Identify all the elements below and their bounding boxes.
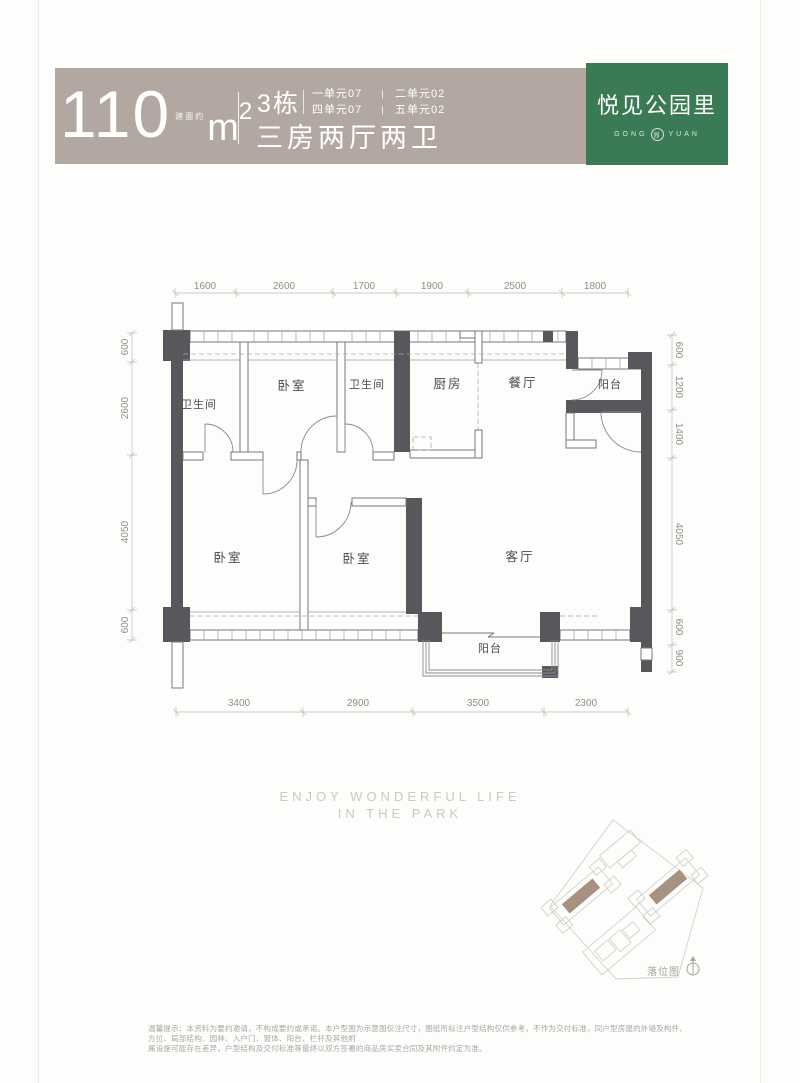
site-plan-label: 落位图 bbox=[647, 965, 680, 978]
dim-top-6: 1800 bbox=[584, 281, 607, 292]
dim-top-5: 2500 bbox=[504, 281, 527, 292]
dim-top-4: 1900 bbox=[421, 281, 444, 292]
dim-left-4: 600 bbox=[120, 616, 131, 633]
disclaimer-line2: 属设施可能存在差异，户型结构及交付标准等最终以双方签署的商品房买卖合同及其附件约… bbox=[148, 1044, 688, 1054]
room-label-bedroom-left: 卧室 bbox=[213, 550, 242, 565]
dim-left-3: 4050 bbox=[120, 520, 131, 543]
dim-left-1: 600 bbox=[120, 338, 131, 355]
tagline-line1: ENJOY WONDERFUL LIFE bbox=[0, 788, 800, 805]
room-label-bathroom-1: 卫生间 bbox=[181, 397, 217, 411]
room-label-bedroom-mid: 卧室 bbox=[342, 551, 371, 566]
dim-left-2: 2600 bbox=[120, 396, 131, 419]
tagline: ENJOY WONDERFUL LIFE IN THE PARK bbox=[0, 788, 800, 822]
dim-right-3: 1400 bbox=[673, 423, 684, 446]
room-label-balcony-top: 阳台 bbox=[598, 377, 622, 391]
sliding-door bbox=[442, 633, 540, 637]
dim-right-5: 600 bbox=[673, 619, 684, 636]
dim-top-3: 1700 bbox=[353, 281, 376, 292]
structural-walls bbox=[163, 330, 652, 678]
tagline-line2: IN THE PARK bbox=[0, 805, 800, 822]
dim-right-2: 1200 bbox=[673, 376, 684, 399]
room-label-kitchen: 厨房 bbox=[433, 376, 462, 391]
dim-top-1: 1600 bbox=[194, 281, 217, 292]
room-label-dining: 餐厅 bbox=[508, 375, 537, 390]
site-plan bbox=[541, 820, 708, 979]
disclaimer-line1: 温馨提示：本资料为要约邀请，不构成要约或承诺。本户型图为示意图仅注尺寸，图纸所标… bbox=[148, 1024, 688, 1044]
room-label-bathroom-2: 卫生间 bbox=[349, 377, 385, 391]
floor-plan: 卫生间 卧室 卫生间 厨房 餐厅 阳台 卧室 卧室 客厅 阳台 1600 260… bbox=[0, 0, 800, 1083]
brochure-page: { "header": { "area_value": "110", "area… bbox=[0, 0, 800, 1083]
compass-icon bbox=[687, 956, 699, 975]
dim-right-4: 4050 bbox=[673, 523, 684, 546]
dim-top-2: 2600 bbox=[273, 281, 296, 292]
dim-bottom-2: 2900 bbox=[347, 698, 370, 709]
dim-bottom-4: 2300 bbox=[575, 698, 598, 709]
room-label-bedroom-top: 卧室 bbox=[277, 378, 306, 393]
disclaimer: 温馨提示：本资料为要约邀请，不构成要约或承诺。本户型图为示意图仅注尺寸，图纸所标… bbox=[148, 1024, 688, 1054]
dim-bottom-1: 3400 bbox=[228, 698, 251, 709]
dim-right-1: 600 bbox=[673, 342, 684, 359]
dim-right-6: 900 bbox=[673, 650, 684, 667]
room-label-balcony-bottom: 阳台 bbox=[478, 641, 502, 655]
room-label-living: 客厅 bbox=[505, 549, 534, 564]
dim-bottom-3: 3500 bbox=[467, 698, 490, 709]
